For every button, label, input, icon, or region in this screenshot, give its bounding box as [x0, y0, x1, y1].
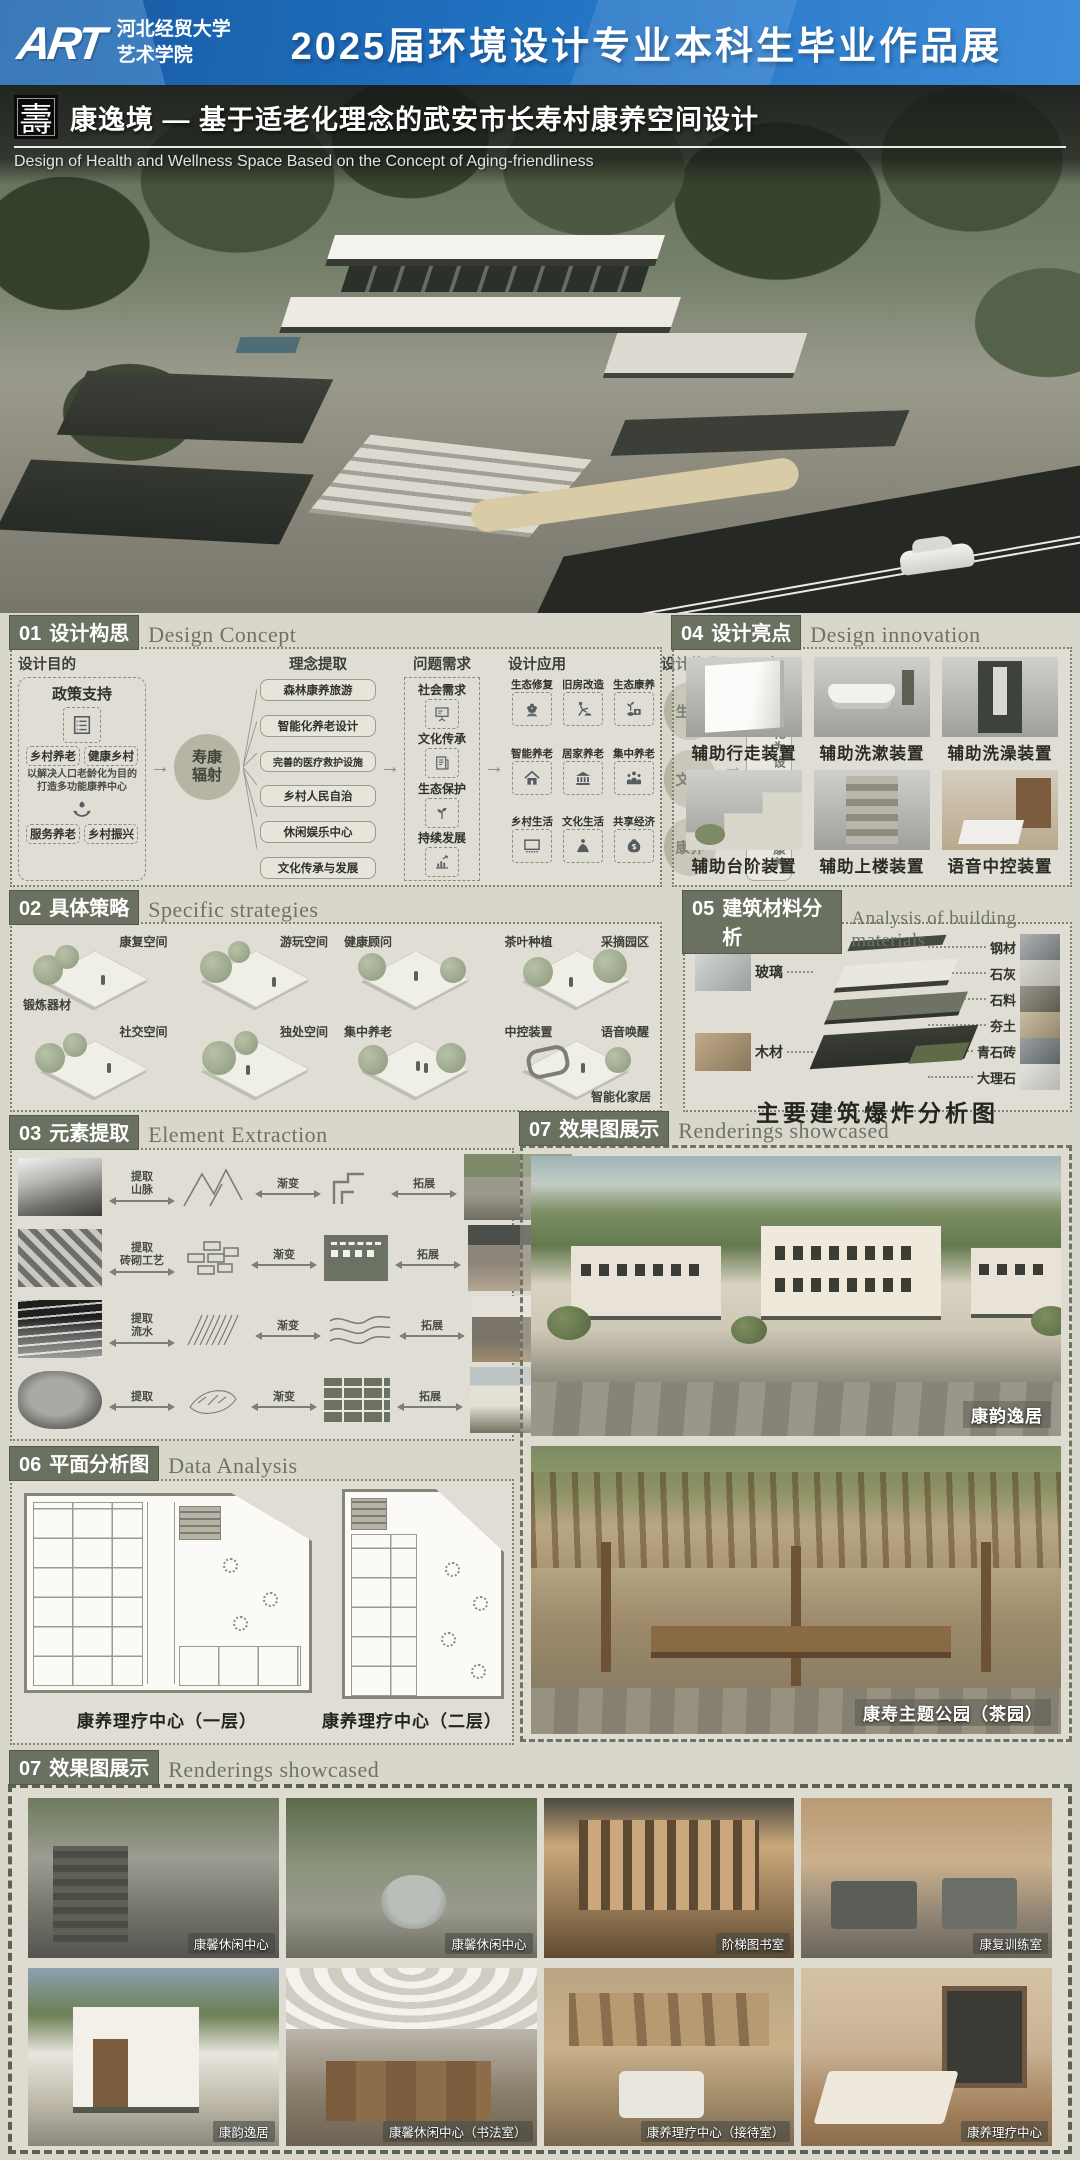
extract-arrow: 提取流水	[111, 1313, 173, 1343]
school-line1: 河北经贸大学	[117, 17, 231, 43]
element-extraction-box: 提取山脉 渐变 拓展 提取砖砌工艺 渐变 拓展 提取流水 渐变 拓展 提取 渐变…	[10, 1148, 514, 1441]
material-thumb	[695, 1033, 751, 1071]
material-label: 大理石	[977, 1068, 1016, 1087]
sprout-icon	[425, 798, 459, 828]
section-number: 05	[692, 898, 714, 921]
project-title: 康逸境 — 基于适老化理念的武安市长寿村康养空间设计	[70, 98, 759, 137]
document-icon	[63, 707, 101, 743]
gallery-image: 阶梯图书室	[544, 1798, 795, 1958]
building-terrace	[279, 297, 681, 333]
expand-arrow: 拓展	[399, 1391, 461, 1409]
section-07b-header: 07效果图展示 Renderings showcased	[10, 1751, 379, 1784]
extract-label: 理念提取	[260, 653, 376, 674]
gallery-caption: 康馨休闲中心	[445, 1933, 532, 1954]
gallery-caption: 康馨休闲中心	[188, 1933, 275, 1954]
building-window-band	[341, 266, 649, 292]
material-label: 青石砖	[977, 1042, 1016, 1061]
section-number: 03	[19, 1123, 41, 1146]
section-number: 06	[19, 1454, 41, 1477]
highlight-grid: 辅助行走装置 辅助洗漱装置 辅助洗澡装置 辅助台阶装置 辅助上楼装置 语音中控装…	[674, 649, 1070, 885]
section-number: 04	[681, 623, 703, 646]
material-thumb	[1020, 986, 1060, 1012]
gallery-box: 康馨休闲中心 康馨休闲中心 阶梯图书室 康复训练室 康韵逸居 康馨休闲中心（书法…	[8, 1784, 1072, 2154]
rendered-building	[571, 1246, 721, 1320]
highlight-label: 语音中控装置	[942, 850, 1058, 877]
material-label: 木材	[755, 1042, 783, 1062]
section-07r-badge: 07效果图展示	[520, 1112, 668, 1145]
newspaper-icon	[425, 748, 459, 778]
plan-rooms	[179, 1646, 301, 1686]
mountain-lines-symbol	[182, 1166, 248, 1208]
material-label: 石料	[990, 990, 1016, 1009]
purpose-text: 以解决人口老龄化为目的打造多功能康养中心	[23, 769, 141, 794]
policy-tags-bottom: 服务养老 乡村振兴	[26, 824, 138, 844]
stair-aid-image	[814, 770, 930, 850]
brick-pattern-symbol	[182, 1238, 244, 1278]
needs-item: 持续发展	[418, 829, 466, 877]
rendering-caption: 康寿主题公园（茶园）	[855, 1699, 1051, 1726]
highlight-item: 辅助洗漱装置	[814, 657, 930, 764]
apply-column: 设计应用 生态修复 旧房改造 生态康养 智能养老 居家养老 集中养老 乡村生活 …	[508, 653, 658, 881]
element-row-water: 提取流水 渐变 拓展	[12, 1294, 512, 1363]
section-04-badge: 04设计亮点	[672, 616, 800, 649]
section-title-en: Analysis of building materials	[851, 908, 1080, 953]
highlight-label: 辅助行走装置	[686, 737, 802, 764]
title-row: 壽 康逸境 — 基于适老化理念的武安市长寿村康养空间设计	[14, 95, 1066, 148]
section-title-en: Specific strategies	[148, 897, 318, 924]
section-01-badge: 01设计构思	[10, 616, 138, 649]
exhibition-banner: ART 河北经贸大学 艺术学院 2025届环境设计专业本科生毕业作品展	[0, 0, 1080, 85]
hub-circle: 寿康辐射	[174, 734, 240, 800]
rock-photo	[18, 1371, 102, 1429]
plan-caption: 康养理疗中心（一层）	[42, 1707, 292, 1732]
needs-item: 社会需求	[418, 681, 466, 729]
caring-hands-icon	[69, 797, 95, 821]
washing-aid-image	[814, 657, 930, 737]
extract-arrow: 提取	[111, 1391, 173, 1409]
arrow-icon: →	[379, 756, 401, 779]
gallery-row-1: 康馨休闲中心 康馨休闲中心 阶梯图书室 康复训练室	[28, 1798, 1052, 1958]
section-title-en: Data Analysis	[168, 1453, 297, 1480]
material-thumb	[1020, 1038, 1060, 1064]
scene-eldercare: 集中养老	[336, 1017, 497, 1107]
bush	[731, 1316, 767, 1344]
pergola-post	[601, 1542, 611, 1672]
material-label: 玻璃	[755, 962, 783, 982]
renderings-box: 康韵逸居 康寿主题公园（茶园）	[520, 1145, 1072, 1742]
needs-label: 问题需求	[404, 653, 480, 674]
worker-icon	[563, 692, 603, 726]
section-title-en: Design innovation	[810, 622, 980, 649]
needs-item-label: 文化传承	[418, 730, 466, 747]
morph-arrow: 渐变	[257, 1320, 319, 1338]
stone-wall	[0, 459, 314, 544]
arrow-icon: →	[483, 756, 505, 779]
material-label: 夯土	[990, 1016, 1016, 1035]
extract-item: 文化传承与发展	[260, 857, 376, 879]
meditation-icon	[563, 829, 603, 863]
gallery-image: 康馨休闲中心（书法室）	[286, 1968, 537, 2146]
section-number: 07	[529, 1119, 551, 1142]
needs-item-label: 持续发展	[418, 829, 466, 846]
material-row: 大理石	[928, 1064, 1060, 1090]
gallery-image: 康复训练室	[801, 1798, 1052, 1958]
extract-list: 森林康养旅游 智能化养老设计 完善的医疗救护设施 乡村人民自治 休闲娱乐中心 文…	[260, 677, 376, 881]
gallery-row-2: 康韵逸居 康馨休闲中心（书法室） 康养理疗中心（接待室） 康养理疗中心	[28, 1968, 1052, 2146]
exploded-axon	[817, 932, 924, 1084]
section-title-zh: 建筑材料分析	[722, 892, 832, 950]
material-thumb	[695, 953, 751, 991]
money-bag-icon	[614, 829, 654, 863]
plan-rooms	[351, 1534, 417, 1696]
gallery-caption: 康养理疗中心（接待室）	[641, 2121, 791, 2142]
gallery-image: 康馨休闲中心	[286, 1798, 537, 1958]
growth-chart-icon	[425, 847, 459, 877]
needs-item: 生态保护	[418, 780, 466, 828]
section-number: 01	[19, 623, 41, 646]
tea-garden-rendering: 康寿主题公园（茶园）	[531, 1446, 1061, 1734]
element-row-mountain: 提取山脉 渐变 拓展	[12, 1152, 512, 1221]
art-logo: ART	[14, 16, 106, 70]
gallery-caption: 阶梯图书室	[716, 1933, 791, 1954]
section-title-zh: 设计构思	[49, 617, 129, 646]
poster: { "banner": { "logo": "ART", "school_lin…	[0, 0, 1080, 2160]
section-title-zh: 具体策略	[49, 892, 129, 921]
longevity-seal: 壽	[14, 95, 58, 139]
design-innovation-box: 辅助行走装置 辅助洗漱装置 辅助洗澡装置 辅助台阶装置 辅助上楼装置 语音中控装…	[672, 647, 1072, 887]
extract-item: 森林康养旅游	[260, 679, 376, 701]
expand-arrow: 拓展	[393, 1178, 455, 1196]
apply-item: 居家养老	[559, 746, 607, 813]
needs-item-label: 社会需求	[418, 681, 466, 698]
section-04-header: 04设计亮点 Design innovation	[672, 616, 981, 649]
school-name: 河北经贸大学 艺术学院	[117, 17, 231, 68]
highlight-item: 辅助上楼装置	[814, 770, 930, 877]
section-title-en: Design Concept	[148, 622, 296, 649]
scene-health: 健康顾问	[336, 927, 497, 1017]
section-03-badge: 03元素提取	[10, 1116, 138, 1149]
scene-play: 游玩空间	[176, 927, 337, 1017]
project-subtitle-en: Design of Health and Wellness Space Base…	[14, 153, 1066, 171]
morph-arrow: 渐变	[257, 1178, 319, 1196]
facade-block-symbol	[324, 1235, 388, 1281]
section-02-badge: 02具体策略	[10, 891, 138, 924]
strategy-scenes: 康复空间锻炼器材 游玩空间 健康顾问 茶叶种植采摘园区 社交空间 独处空间 集中…	[12, 924, 660, 1110]
purpose-label: 设计目的	[18, 653, 146, 674]
section-title-zh: 设计亮点	[711, 617, 791, 646]
needs-item: 文化传承	[418, 730, 466, 778]
section-07r-header: 07效果图展示 Renderings showcased	[520, 1112, 889, 1145]
material-thumb	[1020, 1064, 1060, 1090]
section-05-badge: 05建筑材料分析	[683, 891, 841, 953]
school-line2: 艺术学院	[117, 43, 231, 69]
section-title-en: Element Extraction	[148, 1122, 327, 1149]
section-02-header: 02具体策略 Specific strategies	[10, 891, 318, 924]
needs-column: 问题需求 社会需求 文化传承 生态保护 持续发展	[404, 653, 480, 881]
apply-item: 智能养老	[508, 746, 556, 813]
angular-roof-symbol	[328, 1166, 384, 1208]
section-title-zh: 平面分析图	[49, 1448, 149, 1477]
scene-rehab: 康复空间锻炼器材	[15, 927, 176, 1017]
waterfall-photo	[18, 1300, 102, 1358]
purpose-column: 设计目的 政策支持 乡村养老 健康乡村 以解决人口老龄化为目的打造多功能康养中心…	[18, 653, 146, 881]
plan-staircase	[351, 1498, 387, 1530]
tag: 乡村振兴	[84, 824, 138, 844]
gallery-image: 康韵逸居	[28, 1968, 279, 2146]
gallery-caption: 康馨休闲中心（书法室）	[383, 2121, 533, 2142]
extract-column: 理念提取 森林康养旅游 智能化养老设计 完善的医疗救护设施 乡村人民自治 休闲娱…	[260, 653, 376, 881]
highlight-label: 辅助洗澡装置	[942, 737, 1058, 764]
scene-social: 社交空间	[15, 1017, 176, 1107]
institution-icon	[563, 761, 603, 795]
apply-item: 生态康养	[610, 677, 658, 744]
section-05-header: 05建筑材料分析 Analysis of building materials	[683, 891, 1080, 953]
scene-tea: 茶叶种植采摘园区	[497, 927, 658, 1017]
morph-arrow: 渐变	[253, 1391, 315, 1409]
screen-icon	[512, 829, 552, 863]
apply-item: 乡村生活	[508, 814, 556, 881]
exhibition-title: 2025届环境设计专业本科生毕业作品展	[245, 15, 1062, 70]
building-roof	[325, 235, 665, 266]
expand-arrow: 拓展	[397, 1249, 459, 1267]
needs-box: 社会需求 文化传承 生态保护 持续发展	[404, 677, 480, 881]
hub-label: 寿康辐射	[191, 749, 223, 785]
material-thumb	[1020, 1012, 1060, 1038]
section-number: 07	[19, 1758, 41, 1781]
scene-solitude: 独处空间	[176, 1017, 337, 1107]
gallery-caption: 康养理疗中心	[961, 2121, 1048, 2142]
extract-item: 完善的医疗救护设施	[260, 751, 376, 772]
voice-control-image	[942, 770, 1058, 850]
extract-arrow: 提取山脉	[111, 1171, 173, 1201]
section-number: 02	[19, 898, 41, 921]
eco-health-icon	[614, 692, 654, 726]
floor-plans-box: 康养理疗中心（一层） 康养理疗中心（二层）	[10, 1479, 514, 1745]
floor-plan-level2	[342, 1489, 504, 1699]
gallery-caption: 康复训练室	[973, 1933, 1048, 1954]
section-title-zh: 效果图展示	[49, 1752, 149, 1781]
expand-arrow: 拓展	[401, 1320, 463, 1338]
materials-left: 玻璃 木材	[695, 932, 813, 1092]
plan-caption: 康养理疗中心（二层）	[312, 1707, 512, 1732]
highlight-label: 辅助上楼装置	[814, 850, 930, 877]
flower-icon	[512, 692, 552, 726]
bathing-aid-image	[942, 657, 1058, 737]
material-row: 木材	[695, 1033, 813, 1071]
apply-item: 共享经济	[610, 814, 658, 881]
scene-smarthome: 中控装置语音唤醒智能化家居	[497, 1017, 658, 1107]
policy-title: 政策支持	[52, 683, 112, 704]
highlight-item: 语音中控装置	[942, 770, 1058, 877]
highlight-label: 辅助台阶装置	[686, 850, 802, 877]
section-01-header: 01设计构思 Design Concept	[10, 616, 296, 649]
tag: 服务养老	[26, 824, 80, 844]
section-06-header: 06平面分析图 Data Analysis	[10, 1447, 298, 1480]
policy-tags-top: 乡村养老 健康乡村	[26, 746, 138, 766]
section-07b-badge: 07效果图展示	[10, 1751, 158, 1784]
highlight-item: 辅助洗澡装置	[942, 657, 1058, 764]
hero-rendering: 壽 康逸境 — 基于适老化理念的武安市长寿村康养空间设计 Design of H…	[0, 85, 1080, 613]
extract-arrow: 提取砖砌工艺	[111, 1242, 173, 1272]
tag: 乡村养老	[26, 746, 80, 766]
rock-sketch-symbol	[182, 1381, 244, 1419]
section-title-en: Renderings showcased	[168, 1757, 379, 1784]
flow-lines-symbol	[182, 1309, 248, 1349]
arrow-icon: →	[149, 756, 171, 779]
pergola-post	[981, 1542, 991, 1672]
walking-aid-image	[686, 657, 802, 737]
tag: 健康乡村	[84, 746, 138, 766]
section-06-badge: 06平面分析图	[10, 1447, 158, 1480]
long-table	[651, 1626, 951, 1658]
element-row-rock: 提取 渐变 拓展	[12, 1365, 512, 1434]
grid-block-symbol	[324, 1378, 390, 1422]
gallery-image: 康馨休闲中心	[28, 1798, 279, 1958]
material-row: 玻璃	[695, 953, 813, 991]
element-row-brick: 提取砖砌工艺 渐变 拓展	[12, 1223, 512, 1292]
apply-item: 旧房改造	[559, 677, 607, 744]
strategies-box: 康复空间锻炼器材 游玩空间 健康顾问 茶叶种植采摘园区 社交空间 独处空间 集中…	[10, 922, 662, 1112]
people-group-icon	[614, 761, 654, 795]
building-wing	[603, 333, 808, 378]
section-03-header: 03元素提取 Element Extraction	[10, 1116, 328, 1149]
rendered-building	[761, 1226, 941, 1320]
gallery-image: 康养理疗中心	[801, 1968, 1052, 2146]
mountain-photo	[18, 1158, 102, 1216]
floor-plan-level1	[24, 1493, 312, 1693]
extract-item: 休闲娱乐中心	[260, 821, 376, 843]
gallery-image: 康养理疗中心（接待室）	[544, 1968, 795, 2146]
apply-item: 集中养老	[610, 746, 658, 813]
presentation-board-icon	[425, 699, 459, 729]
plan-rooms	[33, 1502, 143, 1686]
highlight-item: 辅助行走装置	[686, 657, 802, 764]
needs-item-label: 生态保护	[418, 780, 466, 797]
plan-staircase	[179, 1506, 221, 1540]
stone-wall	[57, 371, 334, 444]
highlight-item: 辅助台阶装置	[686, 770, 802, 877]
apply-grid: 生态修复 旧房改造 生态康养 智能养老 居家养老 集中养老 乡村生活 文化生活 …	[508, 677, 658, 881]
plan-corridor	[147, 1502, 175, 1684]
extract-item: 智能化养老设计	[260, 715, 376, 737]
section-title-en: Renderings showcased	[678, 1118, 889, 1145]
title-bar: 壽 康逸境 — 基于适老化理念的武安市长寿村康养空间设计 Design of H…	[0, 85, 1080, 185]
brick-lattice-photo	[18, 1229, 102, 1287]
apply-item: 文化生活	[559, 814, 607, 881]
step-aid-image	[686, 770, 802, 850]
morph-arrow: 渐变	[253, 1249, 315, 1267]
material-thumb	[1020, 960, 1060, 986]
house-icon	[512, 761, 552, 795]
design-concept-box: 设计目的 政策支持 乡村养老 健康乡村 以解决人口老龄化为目的打造多功能康养中心…	[10, 647, 662, 887]
bush	[547, 1306, 591, 1340]
highlight-label: 辅助洗漱装置	[814, 737, 930, 764]
pool	[235, 337, 300, 353]
policy-box: 政策支持 乡村养老 健康乡村 以解决人口老龄化为目的打造多功能康养中心 服务养老…	[18, 677, 146, 881]
section-title-zh: 效果图展示	[559, 1113, 659, 1142]
apply-item: 生态修复	[508, 677, 556, 744]
rendering-caption: 康韵逸居	[963, 1401, 1051, 1428]
concept-flowchart: 设计目的 政策支持 乡村养老 健康乡村 以解决人口老龄化为目的打造多功能康养中心…	[12, 649, 660, 885]
material-label: 石灰	[990, 964, 1016, 983]
pergola-post	[791, 1546, 801, 1686]
wave-lines-symbol	[328, 1311, 392, 1347]
apply-label: 设计应用	[508, 653, 658, 674]
gallery-caption: 康韵逸居	[213, 2121, 275, 2142]
bush	[1031, 1306, 1061, 1336]
connector-lines	[243, 667, 257, 867]
village-rendering: 康韵逸居	[531, 1156, 1061, 1436]
section-title-zh: 元素提取	[49, 1117, 129, 1146]
extract-item: 乡村人民自治	[260, 785, 376, 807]
